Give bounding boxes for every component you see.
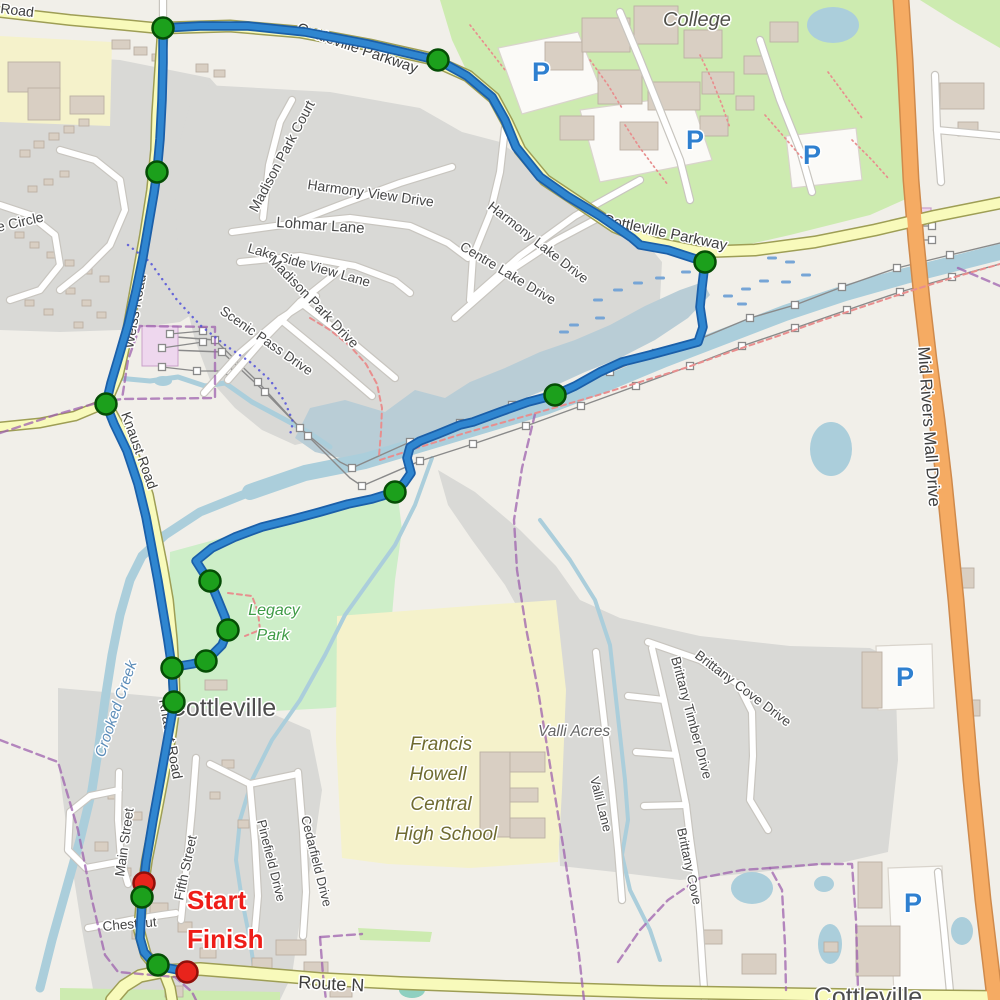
building xyxy=(560,116,594,140)
route-n-label: Route N xyxy=(298,972,365,995)
wetland-dash xyxy=(593,299,603,302)
building xyxy=(82,300,91,306)
substation-pylon-icon xyxy=(200,328,207,335)
power-pylon-icon xyxy=(792,302,799,309)
building xyxy=(8,62,60,92)
parking-icon: P xyxy=(896,662,914,692)
substation-pylon-icon xyxy=(167,331,174,338)
building xyxy=(196,64,208,72)
building xyxy=(824,942,838,952)
building xyxy=(79,119,89,126)
building xyxy=(856,926,900,976)
wetland-dash xyxy=(767,257,777,260)
school-label-line-3: Central xyxy=(410,794,472,815)
building xyxy=(65,260,74,266)
substation-pylon-icon xyxy=(159,364,166,371)
parking-icon: P xyxy=(686,125,704,155)
parking-icon: P xyxy=(803,140,821,170)
power-pylon-icon xyxy=(262,389,269,396)
route-waypoint-marker[interactable] xyxy=(695,252,716,273)
building xyxy=(100,276,109,282)
power-pylon-icon xyxy=(747,315,754,322)
legacy-park-label-2: Park xyxy=(257,627,291,644)
brittany-stub-3 xyxy=(644,805,686,806)
legacy-park-label-1: Legacy xyxy=(248,602,301,619)
route-waypoint-marker[interactable] xyxy=(545,385,566,406)
route-waypoint-marker[interactable] xyxy=(96,394,117,415)
route-map[interactable]: RoadCottleville ParkwayCottleville Parkw… xyxy=(0,0,1000,1000)
route-waypoint-marker[interactable] xyxy=(153,18,174,39)
building xyxy=(742,954,776,974)
building xyxy=(684,30,722,58)
building xyxy=(30,242,39,248)
pond-se-4 xyxy=(951,917,973,945)
pond-small-west xyxy=(154,376,172,386)
route-waypoint-marker[interactable] xyxy=(196,651,217,672)
power-pylon-icon xyxy=(255,379,262,386)
wetland-dash xyxy=(723,295,733,298)
substation-pylon-icon xyxy=(194,368,201,375)
brittany-stub-1 xyxy=(628,696,664,700)
building xyxy=(702,72,734,94)
building xyxy=(74,322,83,328)
start-label: Start xyxy=(187,885,247,915)
building xyxy=(940,83,984,109)
building xyxy=(545,42,583,70)
building xyxy=(276,940,306,955)
power-pylon-icon xyxy=(417,458,424,465)
map-canvas[interactable]: RoadCottleville ParkwayCottleville Parkw… xyxy=(0,0,1000,1000)
building xyxy=(44,179,53,185)
route-waypoint-marker[interactable] xyxy=(385,482,406,503)
route-waypoint-marker[interactable] xyxy=(132,887,153,908)
building xyxy=(95,842,108,851)
building xyxy=(60,171,69,177)
building xyxy=(510,752,545,772)
school-label-line-4: High School xyxy=(395,824,498,845)
finish-label: Finish xyxy=(187,924,264,954)
college-label: College xyxy=(663,9,731,31)
wetland-dash xyxy=(559,331,569,334)
route-waypoint-marker[interactable] xyxy=(428,50,449,71)
building xyxy=(736,96,754,110)
college-pond xyxy=(807,7,859,43)
building xyxy=(210,792,220,799)
route-waypoint-marker[interactable] xyxy=(164,692,185,713)
building xyxy=(510,788,538,802)
parking-icon: P xyxy=(532,57,550,87)
building xyxy=(134,47,147,55)
substation-pylon-icon xyxy=(200,339,207,346)
school-label-line-1: Francis xyxy=(410,734,473,755)
building xyxy=(238,820,249,828)
cottleville-place-label-partial: Cottleville xyxy=(814,983,922,1000)
power-pylon-icon xyxy=(947,252,954,259)
finish-marker[interactable] xyxy=(177,962,198,983)
power-pylon-icon xyxy=(470,441,477,448)
wetland-dash xyxy=(741,288,751,291)
wetland-dash xyxy=(595,317,605,320)
building xyxy=(862,652,882,708)
building xyxy=(598,70,642,104)
substation-pylon-icon xyxy=(159,345,166,352)
power-pylon-icon xyxy=(349,465,356,472)
wetland-dash xyxy=(655,277,665,280)
wetland-dash xyxy=(759,280,769,283)
power-pylon-icon xyxy=(523,423,530,430)
building xyxy=(214,70,225,77)
power-pylon-icon xyxy=(359,483,366,490)
power-pylon-icon xyxy=(839,284,846,291)
route-waypoint-marker[interactable] xyxy=(148,955,169,976)
power-pylon-icon xyxy=(894,265,901,272)
building xyxy=(97,312,106,318)
building xyxy=(700,116,728,136)
building xyxy=(510,818,545,838)
wetland-dash xyxy=(801,274,811,277)
school-label-line-2: Howell xyxy=(409,764,467,785)
building xyxy=(34,141,44,148)
wetland-dash xyxy=(737,303,747,306)
wetland-dash xyxy=(681,271,691,274)
building xyxy=(25,300,34,306)
pond-east xyxy=(810,422,852,476)
wetland-dash xyxy=(781,281,791,284)
parking-icon: P xyxy=(904,888,922,918)
valli-acres-label: Valli Acres xyxy=(538,723,610,740)
pond-se-1 xyxy=(731,872,773,904)
route-waypoint-marker[interactable] xyxy=(147,162,168,183)
wetland-dash xyxy=(785,261,795,264)
building xyxy=(20,150,30,157)
power-pylon-icon xyxy=(297,425,304,432)
brittany-stub-2 xyxy=(636,752,676,755)
route-waypoint-marker[interactable] xyxy=(200,571,221,592)
power-pylon-icon xyxy=(578,403,585,410)
route-waypoint-marker[interactable] xyxy=(162,658,183,679)
building xyxy=(28,88,60,120)
building xyxy=(770,22,798,42)
power-pylon-icon xyxy=(305,433,312,440)
building xyxy=(44,309,53,315)
building xyxy=(15,232,24,238)
building xyxy=(858,862,882,908)
building xyxy=(112,40,130,49)
power-pylon-icon xyxy=(219,349,226,356)
wetland-dash xyxy=(633,282,643,285)
pond-se-2 xyxy=(814,876,834,892)
building xyxy=(64,126,74,133)
building xyxy=(205,680,227,690)
wetland-dash xyxy=(613,289,623,292)
route-waypoint-marker[interactable] xyxy=(218,620,239,641)
building xyxy=(70,96,104,114)
wetland-dash xyxy=(569,324,579,327)
substation-pylon-icon xyxy=(929,237,936,244)
building xyxy=(49,133,59,140)
building xyxy=(28,186,37,192)
